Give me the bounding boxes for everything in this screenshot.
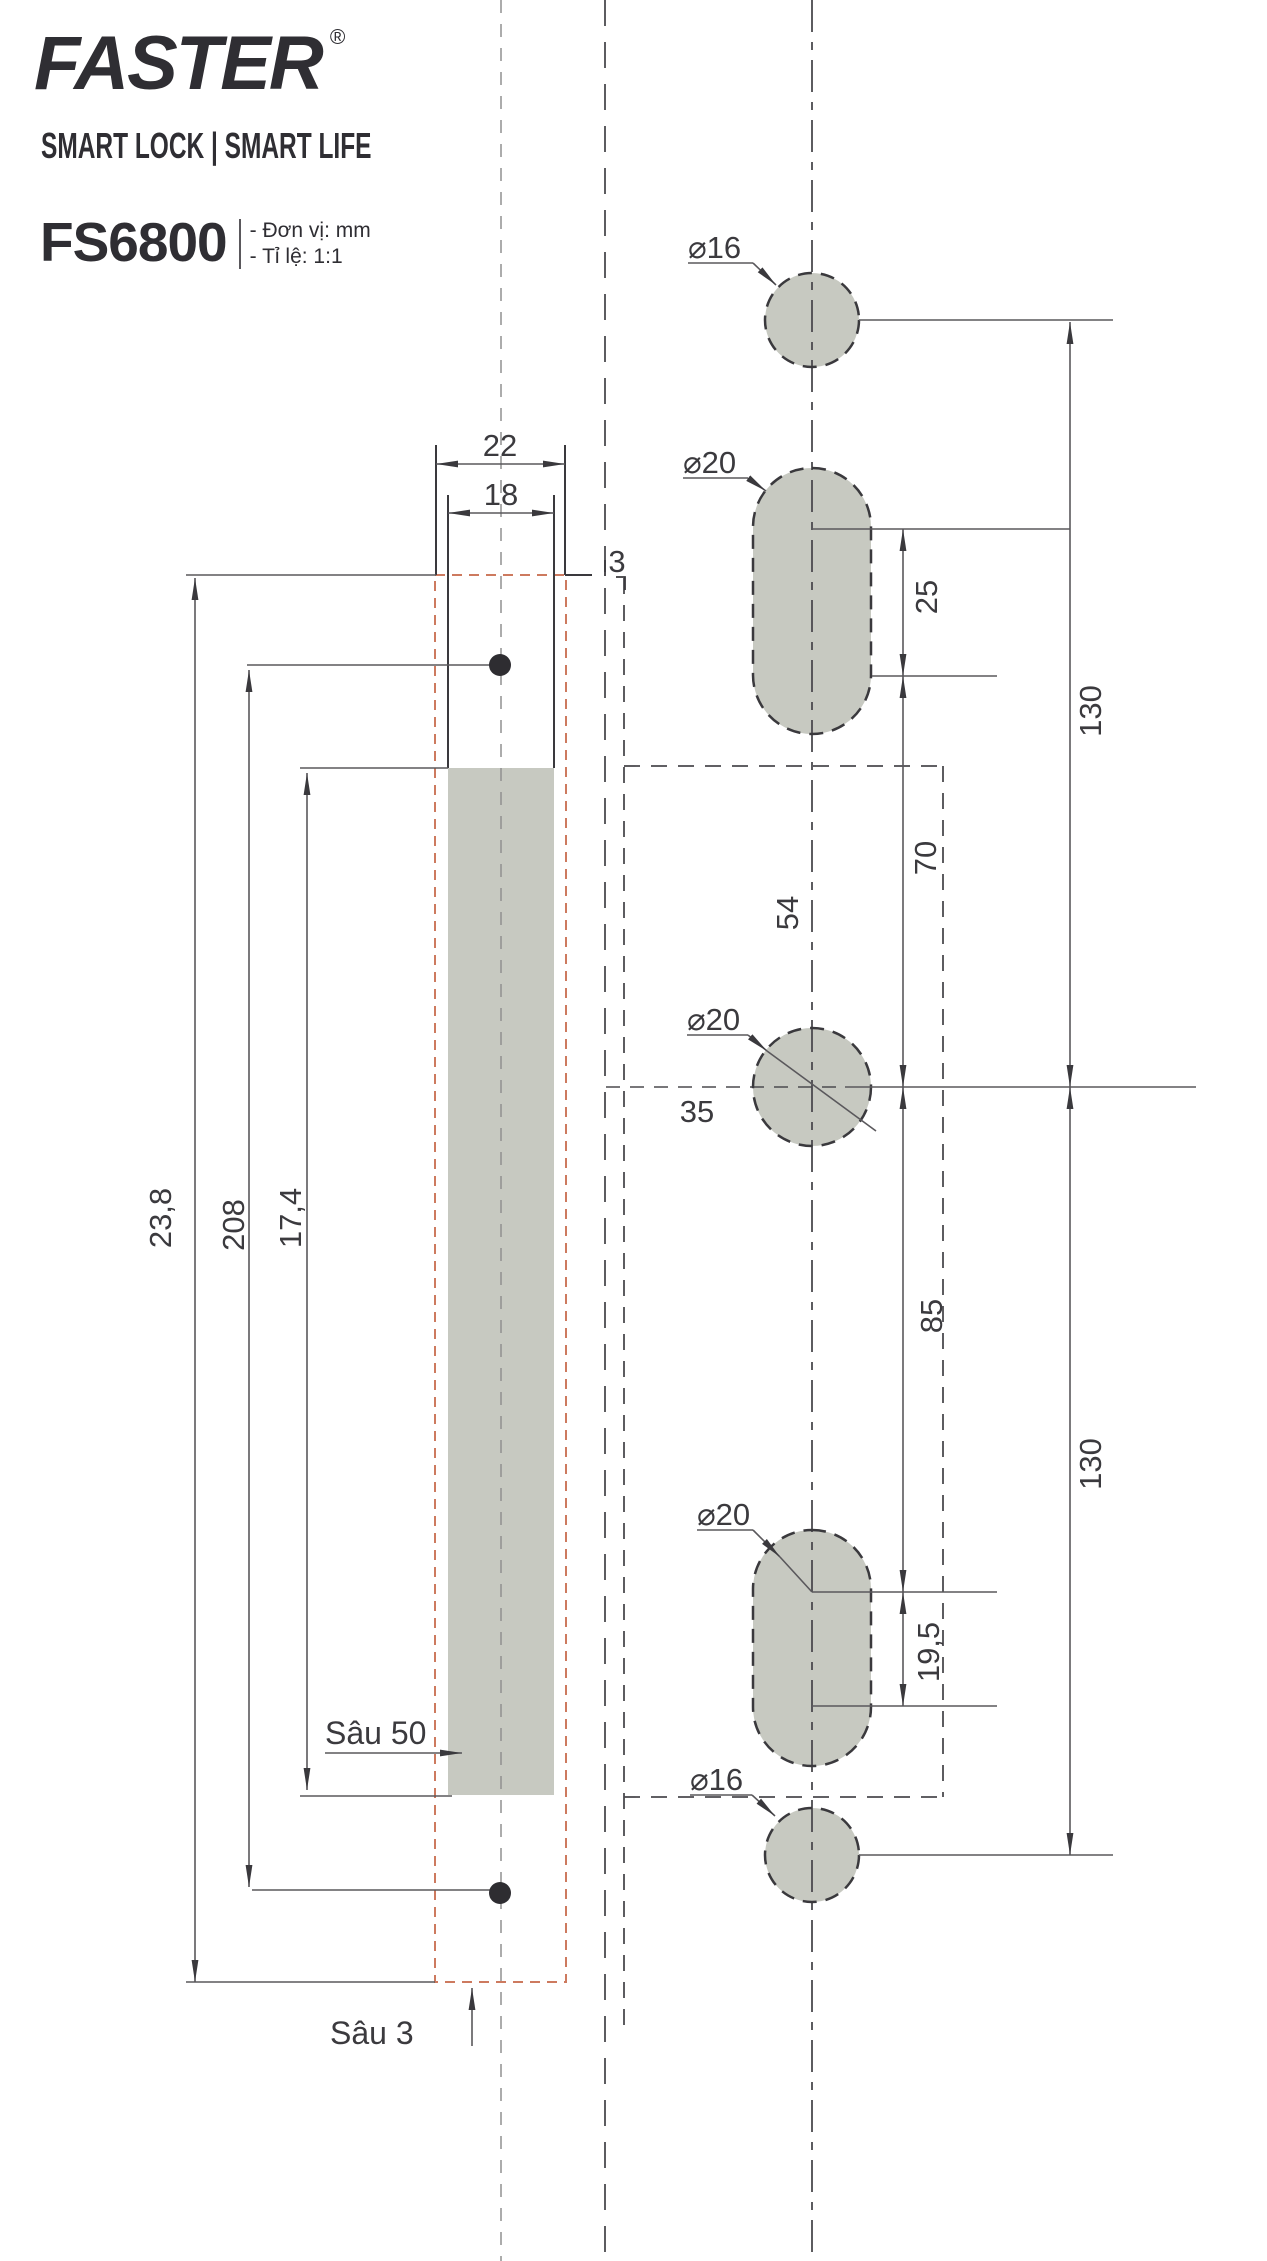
label-screw-spacing: 208: [216, 1199, 251, 1251]
leader-diag-top20: [748, 478, 766, 491]
label-bottom-hole-dia: ⌀16: [690, 1762, 743, 1797]
label-center-hole-dia: ⌀20: [687, 1002, 740, 1037]
leader-diag-top16: [753, 263, 776, 285]
leader-diag-bot16: [752, 1795, 775, 1816]
label-plate-length: 23,8: [143, 1188, 178, 1248]
leader-diag-mid20: [748, 1035, 767, 1051]
label-recess-offset: 3: [608, 544, 625, 579]
dimension-drawing: 22 18 3 ⌀16 ⌀20 ⌀20 ⌀20 ⌀16 25 70 54 35 …: [0, 0, 1267, 2261]
label-lower-slot-dia: ⌀20: [697, 1497, 750, 1532]
label-35: 35: [680, 1094, 714, 1129]
label-85: 85: [914, 1299, 949, 1333]
label-130-bottom: 130: [1073, 1438, 1108, 1490]
label-upper-slot-dia: ⌀20: [683, 445, 736, 480]
label-54: 54: [770, 896, 805, 930]
label-sau3: Sâu 3: [330, 2015, 414, 2051]
label-130-top: 130: [1073, 685, 1108, 737]
label-plate-width: 22: [483, 428, 517, 463]
screw-hole-top: [489, 654, 511, 676]
label-25: 25: [909, 580, 944, 614]
label-slot-width: 18: [484, 477, 518, 512]
label-19-5: 19,5: [911, 1622, 946, 1682]
label-top-hole-dia: ⌀16: [688, 230, 741, 265]
label-sau50: Sâu 50: [325, 1715, 426, 1751]
label-70: 70: [908, 841, 943, 875]
technical-drawing-page: FASTER® SMART LOCK | SMART LIFE FS6800 -…: [0, 0, 1267, 2261]
screw-hole-bottom: [489, 1882, 511, 1904]
label-slot-length: 17,4: [273, 1188, 308, 1248]
dimension-labels: 22 18 3 ⌀16 ⌀20 ⌀20 ⌀20 ⌀16 25 70 54 35 …: [143, 230, 1108, 2051]
object-lines: [436, 445, 625, 768]
